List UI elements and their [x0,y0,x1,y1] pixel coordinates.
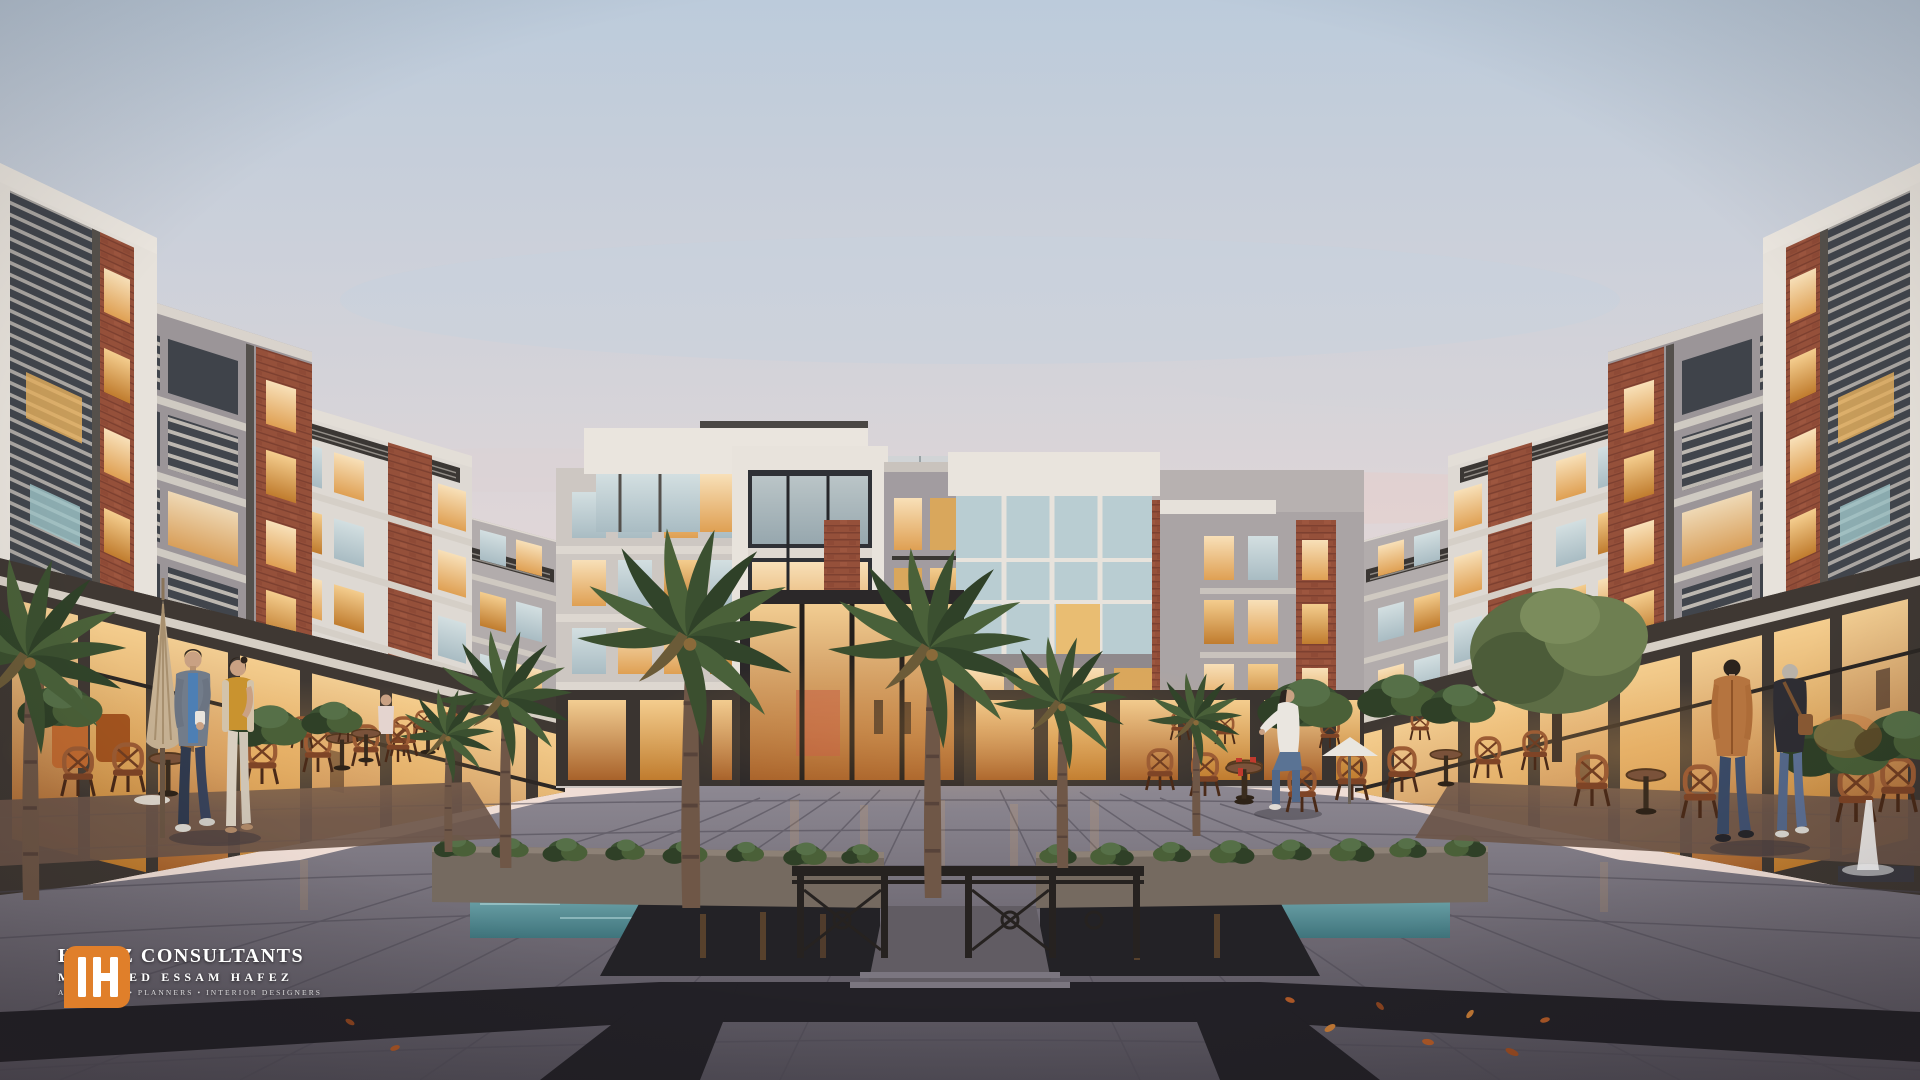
architectural-rendering: HAFEZ CONSULTANTS MOHAMED ESSAM HAFEZ AR… [0,0,1920,1080]
scene-canvas [0,0,1920,1080]
ih-monogram-icon [64,946,130,1008]
firm-logo-block: HAFEZ CONSULTANTS MOHAMED ESSAM HAFEZ AR… [58,946,322,997]
vignette [0,0,1920,1080]
